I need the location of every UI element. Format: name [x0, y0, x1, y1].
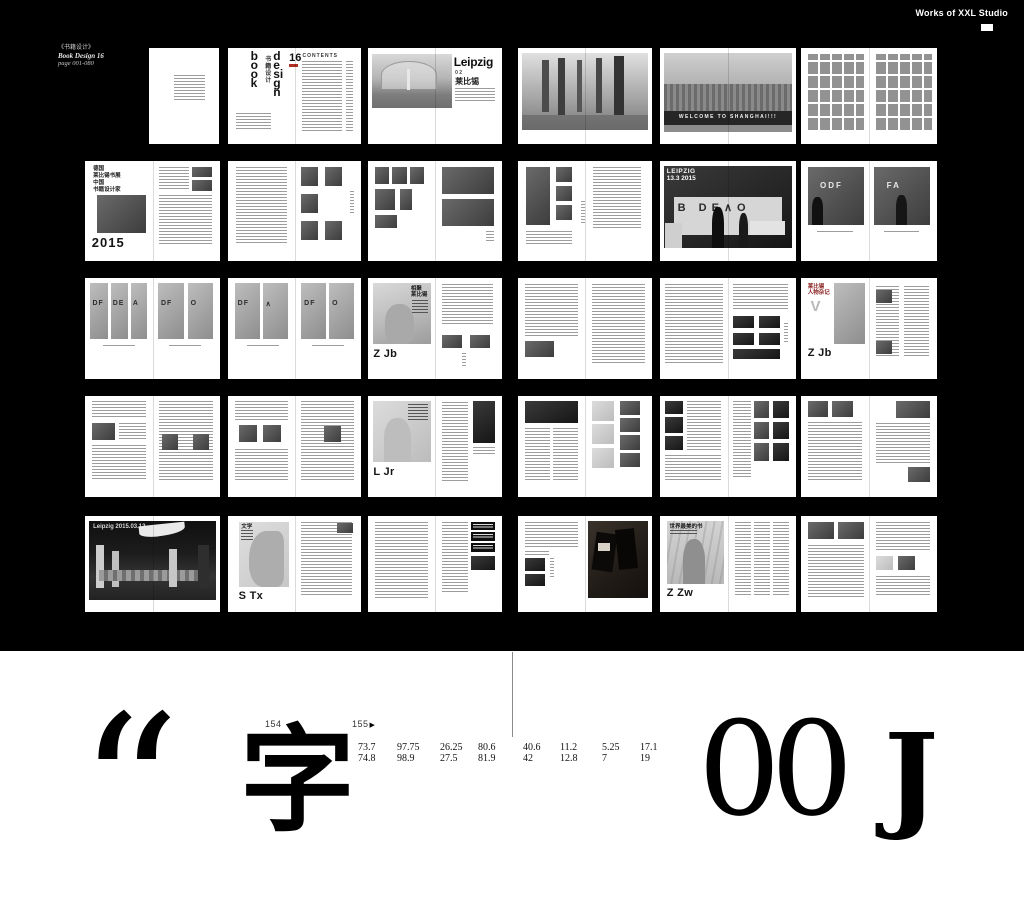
red-accent: [289, 64, 298, 67]
banner: [596, 58, 603, 114]
spread-text-photos: [660, 278, 796, 379]
text-lines: [670, 530, 697, 534]
corner-marker: [981, 24, 993, 31]
photo-placeholder: [773, 443, 789, 460]
pillar: [169, 549, 177, 587]
strip-letter: O: [191, 300, 197, 307]
text-lines: [876, 423, 930, 463]
text-lines: [665, 455, 721, 481]
spread-zzw-profile: 世界最美的书 Z Zw: [660, 516, 796, 612]
crowd: [664, 84, 792, 111]
element: 42: [523, 753, 541, 764]
text-lines: [103, 345, 135, 348]
portrait-head: [385, 304, 413, 343]
spread-welcome-shanghai: WELCOME TO SHANGHAI!!!: [660, 48, 796, 144]
photo-placeholder: [392, 167, 407, 184]
spread-text-essay-2: [85, 396, 220, 497]
measurement-column: 97.7598.9: [397, 742, 420, 764]
spread-text-essay-4: [801, 396, 937, 497]
photo-placeholder: [808, 401, 828, 417]
heading-text: 莱比锡书展: [93, 173, 121, 179]
text-lines: [159, 195, 212, 245]
photo-placeholder: [239, 425, 258, 442]
leipzig-title-cn: 莱比锡: [455, 76, 479, 87]
text-lines: [884, 231, 919, 234]
spread-fair-hall-photo: [518, 48, 652, 144]
measurement-column: 40.642: [523, 742, 541, 764]
text-lines: [525, 428, 550, 481]
text-lines: [733, 401, 751, 477]
strip-letter: DF: [304, 300, 315, 307]
photo-placeholder: [665, 417, 683, 433]
black-stamp-block: [471, 532, 495, 541]
spread-audience-books: [518, 396, 652, 497]
project-title-cn: 《书籍设计》: [58, 44, 104, 52]
element: 26.25: [440, 742, 463, 753]
element: 7: [602, 753, 620, 764]
figure-silhouette: [896, 195, 907, 225]
pillar: [96, 545, 104, 588]
photo-placeholder: [620, 418, 640, 432]
photo-placeholder: [526, 167, 550, 225]
text-lines: [236, 113, 271, 130]
photo-placeholder: [733, 316, 753, 328]
designer-initials: Z Jb: [373, 348, 397, 360]
spread-leipzig-chapter: Leipzig 0 2 莱比锡: [368, 48, 502, 144]
strip-letter: DF: [238, 300, 249, 307]
photo-placeholder: DF: [301, 283, 326, 339]
banner: [558, 58, 565, 116]
photo-placeholder: [592, 401, 615, 421]
spread-stx-profile: 文学 S Tx: [228, 516, 361, 612]
booth-letters-left: ODF: [820, 181, 843, 190]
text-lines: [550, 558, 554, 577]
dark-wall: [198, 545, 209, 588]
portrait-figure: [683, 539, 705, 584]
photo-placeholder: [759, 316, 779, 328]
spread-zjb-profile: 相聚 莱比锡 Z Jb: [368, 278, 502, 379]
next-page-arrow[interactable]: ▶: [370, 722, 376, 729]
photo-placeholder: [525, 341, 554, 357]
photo-placeholder: [325, 167, 342, 186]
spread-booth-pair: ODF FA: [801, 161, 937, 261]
text-lines: [119, 423, 146, 440]
text-lines: [817, 231, 852, 234]
element: 27.5: [440, 753, 463, 764]
photo-placeholder: [89, 521, 216, 601]
spread-leipzig-booth: LEIPZIG 13.3 2015 B DE∧O: [660, 161, 796, 261]
text-lines: [665, 284, 722, 365]
book-shelf: [665, 223, 681, 248]
photo-placeholder: [876, 290, 892, 303]
spread-half-title: [149, 48, 219, 144]
project-title-en: Book Design 16: [58, 52, 104, 60]
text-lines: [236, 167, 287, 245]
photo-placeholder: [375, 189, 395, 210]
spread-text-essay-3: [228, 396, 361, 497]
spread-booth-strips-2: DF ∧ DF O: [228, 278, 361, 379]
text-lines: [350, 191, 354, 215]
photo-placeholder: [620, 401, 640, 415]
spread-photos-text: [518, 161, 652, 261]
photo-placeholder: [773, 401, 789, 418]
page-number-right[interactable]: 155▶: [352, 719, 375, 729]
spread-ljr-profile: L Jr: [368, 396, 502, 497]
element: 80.6: [478, 742, 496, 753]
contents-title: CONTENTS: [302, 53, 338, 59]
photo-placeholder: [162, 434, 178, 449]
text-lines: [808, 422, 862, 481]
photo-placeholder: [92, 423, 115, 440]
photo-placeholder: [473, 401, 496, 443]
vertical-word: book: [251, 52, 264, 88]
text-lines: [235, 401, 288, 421]
text-lines: [312, 345, 344, 348]
giant-character-glyph: 字: [240, 724, 355, 839]
text-lines: [92, 445, 146, 480]
photo-placeholder: [325, 221, 342, 240]
silhouette: [249, 531, 284, 587]
text-lines: [241, 530, 253, 540]
photo-placeholder: [470, 335, 490, 348]
spread-leipzig-hall-photo: Leipzig 2015.03.12: [85, 516, 220, 612]
text-lines: [687, 401, 721, 449]
photo-placeholder: [592, 448, 615, 468]
text-lines: [593, 167, 641, 229]
measurement-column: 17.119: [640, 742, 658, 764]
designer-initials: L Jr: [373, 466, 394, 478]
photo-placeholder: [301, 194, 318, 213]
text-lines: [442, 402, 469, 481]
text-lines: [525, 284, 579, 337]
photo-placeholder: [324, 426, 341, 442]
black-stamp-block: [471, 522, 495, 531]
text-lines: [235, 449, 288, 481]
text-lines: [526, 231, 572, 245]
photo-placeholder: ∧: [263, 283, 288, 339]
text-lines: [525, 551, 549, 556]
booth-letters-right: FA: [887, 181, 901, 190]
element: 12.8: [560, 753, 578, 764]
thumbnail-grid-right: [874, 54, 931, 133]
photo-placeholder: [375, 167, 390, 184]
photo-placeholder: [556, 186, 572, 201]
element: 81.9: [478, 753, 496, 764]
element: 74.8: [358, 753, 376, 764]
photo-placeholder: [876, 556, 894, 569]
year-2015: 2015: [92, 235, 125, 250]
measurement-column: 5.257: [602, 742, 620, 764]
designer-initials: Z Zw: [667, 587, 693, 599]
element: 11.2: [560, 742, 578, 753]
text-lines: [581, 201, 585, 223]
strip-letter: DF: [161, 300, 172, 307]
spread-thumbnail-grid: [801, 48, 937, 144]
spread-book-objects: [660, 396, 796, 497]
figure-silhouette: [812, 197, 823, 225]
crowd: [522, 115, 648, 129]
spread-2015-cover: 德国 莱比锡书展 中国 书籍设计家 2015: [85, 161, 220, 261]
text-lines: [473, 447, 496, 455]
giant-letter-glyph: J: [884, 719, 938, 834]
photo-placeholder: [192, 180, 212, 191]
spread-photo-collage: [368, 161, 502, 261]
text-lines: [876, 576, 930, 595]
fountain: [407, 69, 410, 90]
text-lines: [773, 522, 789, 595]
photo-placeholder: [556, 167, 572, 182]
text-lines: [302, 61, 342, 130]
vertical-word: 书籍设计: [265, 57, 272, 85]
photo-placeholder: [808, 522, 834, 539]
spread-essay-photos: [228, 161, 361, 261]
element: 98.9: [397, 753, 420, 764]
text-lines: [455, 88, 495, 100]
photo-placeholder: [759, 333, 779, 345]
photo-placeholder: O: [188, 283, 214, 339]
heading-text: 书籍设计家: [93, 187, 121, 193]
photo-placeholder: [442, 335, 462, 348]
element: 5.25: [602, 742, 620, 753]
designer-initials: Z Jb: [808, 347, 832, 359]
spread-book-design-title: book design 书籍设计 16 CONTENTS: [228, 48, 361, 144]
text-lines: [346, 61, 353, 130]
exhibit-tables: [99, 570, 207, 582]
giant-quote-glyph: “: [78, 690, 180, 890]
photo-placeholder: [832, 401, 852, 417]
photo-placeholder: DF: [158, 283, 184, 339]
photo-placeholder: [620, 453, 640, 467]
photo-placeholder: [410, 167, 425, 184]
photo-placeholder: [375, 215, 398, 228]
spread-closing: [801, 516, 937, 612]
photo-placeholder: [263, 425, 282, 442]
photo-placeholder: [301, 221, 318, 240]
element: 73.7: [358, 742, 376, 753]
photo-placeholder: [898, 556, 916, 569]
photo-placeholder: [908, 467, 930, 482]
figure-silhouette: [739, 213, 749, 248]
text-lines: [754, 522, 770, 595]
welcome-banner: WELCOME TO SHANGHAI!!!: [674, 114, 783, 120]
heading-text: 德国: [93, 166, 104, 172]
photo-placeholder: [838, 522, 864, 539]
spread-text-stamps: [368, 516, 502, 612]
text-lines: [876, 522, 930, 551]
element: 19: [640, 753, 658, 764]
project-label: 《书籍设计》 Book Design 16 page 001-080: [58, 44, 104, 68]
photo-placeholder: [442, 199, 494, 226]
big-letter-v: V: [811, 298, 821, 315]
designer-initials: S Tx: [239, 590, 263, 602]
photo-placeholder: [876, 341, 892, 354]
element: 17.1: [640, 742, 658, 753]
photo-placeholder: [525, 401, 579, 423]
booth-date-line2: 13.3 2015: [667, 175, 696, 182]
photo-placeholder: DF: [90, 283, 108, 339]
measurement-column: 26.2527.5: [440, 742, 463, 764]
giant-zeros-glyph: 00: [698, 704, 843, 834]
photo-placeholder: [301, 167, 318, 186]
big-16: 16: [289, 52, 301, 64]
measurement-column: 11.212.8: [560, 742, 578, 764]
text-lines: [92, 401, 146, 419]
photo-placeholder: [193, 434, 209, 449]
photo-placeholder: DE: [111, 283, 129, 339]
site-title: Works of XXL Studio: [916, 8, 1008, 18]
strip-letter: DF: [92, 300, 103, 307]
photo-placeholder: [400, 189, 412, 210]
photo-placeholder: [665, 436, 683, 449]
text-lines: [904, 286, 928, 357]
text-lines: [247, 345, 279, 348]
text-lines: [784, 323, 788, 341]
text-lines: [159, 167, 189, 189]
book-label: [598, 543, 610, 551]
photo-placeholder: [773, 422, 789, 439]
text-lines: [375, 522, 429, 599]
photo-placeholder: [754, 422, 769, 439]
photo-placeholder: [525, 574, 545, 586]
text-lines: [808, 545, 864, 597]
measurement-column: 73.774.8: [358, 742, 376, 764]
photo-placeholder: [442, 167, 494, 194]
heading-text: 中国: [93, 180, 104, 186]
portrait-figure: [384, 418, 411, 461]
text-lines: [442, 522, 469, 594]
photo-placeholder: [556, 205, 572, 220]
photo-placeholder: [592, 424, 615, 444]
spread-booth-strips-1: DF DE A DF O: [85, 278, 220, 379]
spread-text-essay-1: [518, 278, 652, 379]
photo-placeholder: [620, 435, 640, 449]
strip-letter: ∧: [266, 300, 272, 308]
strip-letter: O: [332, 300, 338, 307]
booth-date-line1: LEIPZIG: [667, 168, 696, 175]
strip-letter: A: [133, 300, 139, 307]
photo-placeholder: [754, 443, 769, 460]
vertical-word: design: [273, 52, 286, 97]
figure-silhouette: [712, 207, 724, 248]
text-lines: [735, 522, 751, 595]
text-lines: [525, 522, 579, 547]
banner: [614, 56, 623, 116]
photo-placeholder: O: [329, 283, 354, 339]
banner: [577, 60, 582, 113]
photo-placeholder: [471, 556, 495, 569]
spread-zjb-notes: 莱比锡 人物杂记 V Z Jb: [801, 278, 937, 379]
project-page-range: page 001-080: [58, 60, 104, 68]
photo-placeholder: [896, 401, 930, 418]
element: 40.6: [523, 742, 541, 753]
display-table: [750, 221, 785, 235]
text-lines: [592, 284, 646, 363]
photo-placeholder: [192, 167, 212, 177]
text-lines: [462, 353, 466, 367]
leipzig-title: Leipzig: [454, 55, 493, 69]
text-lines: [486, 231, 494, 243]
photo-placeholder: [337, 523, 353, 534]
text-lines: [169, 345, 201, 348]
portfolio-board: Works of XXL Studio 《书籍设计》 Book Design 1…: [0, 0, 1024, 651]
banner: [542, 60, 549, 113]
text-lines: [733, 284, 787, 310]
heading-text: 文学: [241, 524, 252, 530]
text-lines: [412, 300, 428, 314]
element: 97.75: [397, 742, 420, 753]
photo-placeholder: [665, 401, 683, 414]
text-lines: [553, 428, 578, 481]
heading-text: 莱比锡: [411, 292, 428, 298]
photo-placeholder: A: [131, 283, 147, 339]
text-lines: [408, 404, 428, 420]
center-divider: [512, 652, 513, 737]
thumbnail-grid-left: [806, 54, 863, 133]
photo-placeholder: [733, 349, 779, 359]
photo-placeholder: [733, 333, 753, 345]
measurement-column: 80.681.9: [478, 742, 496, 764]
text-lines: [442, 284, 493, 326]
strip-letter: DE: [113, 300, 125, 307]
photo-placeholder: [834, 283, 865, 344]
photo-placeholder: [754, 401, 769, 418]
black-stamp-block: [471, 543, 495, 552]
heading-text: 人物杂记: [808, 290, 830, 296]
text-lines: [174, 75, 205, 100]
heading-text: 世界最美的书: [670, 524, 703, 530]
photo-placeholder: [525, 558, 545, 570]
spread-black-books: [518, 516, 652, 612]
photo-placeholder: [97, 195, 146, 233]
photo-placeholder: DF: [235, 283, 260, 339]
